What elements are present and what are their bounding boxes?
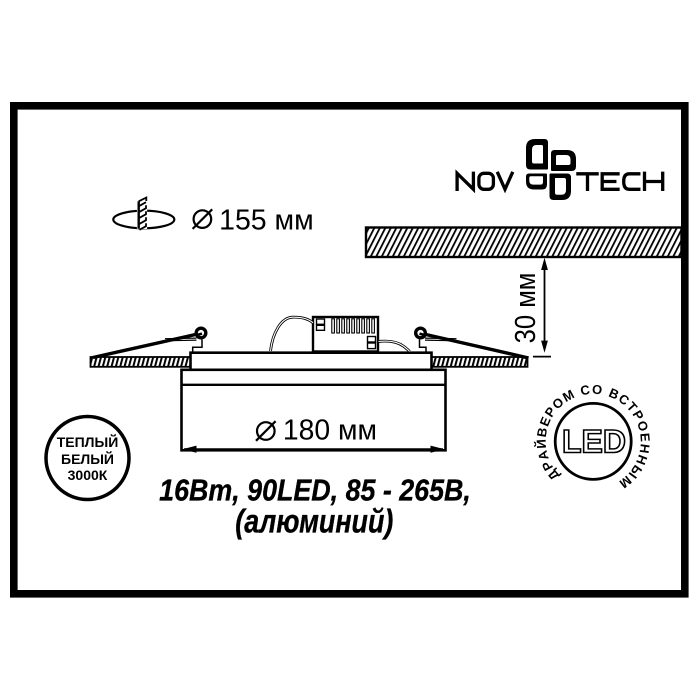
svg-text:Й: Й: [534, 439, 549, 449]
svg-text:30 мм: 30 мм: [508, 273, 541, 344]
svg-text:180 мм: 180 мм: [283, 414, 377, 446]
svg-text:ТЕПЛЫЙ: ТЕПЛЫЙ: [57, 433, 119, 450]
svg-text:Е: Е: [637, 432, 653, 442]
svg-text:3000К: 3000К: [68, 467, 108, 483]
svg-text:LED: LED: [562, 424, 626, 460]
svg-text:БЕЛЫЙ: БЕЛЫЙ: [61, 450, 114, 467]
svg-text:155 мм: 155 мм: [219, 204, 314, 236]
svg-text:О: О: [591, 382, 602, 398]
svg-text:(алюминий): (алюминий): [235, 504, 393, 540]
